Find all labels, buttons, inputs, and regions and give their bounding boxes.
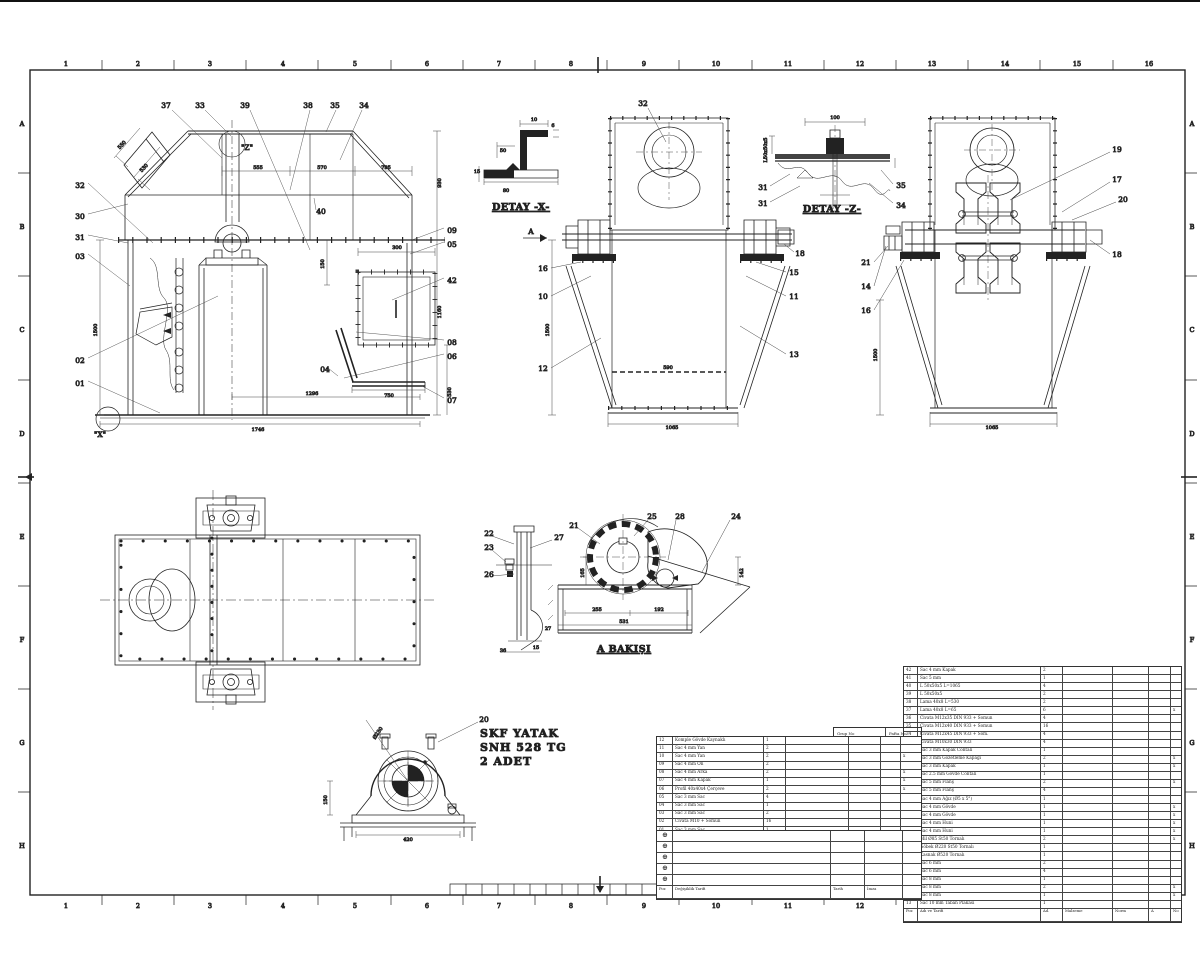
svg-text:B: B	[1190, 223, 1195, 231]
svg-text:13: 13	[928, 60, 936, 68]
table-row: 12Komple Gövde Kaynaklı1	[657, 737, 921, 745]
table-row: 28Sac 5 mm Flanş2 x	[904, 780, 1181, 788]
svg-text:SNH 528 TG: SNH 528 TG	[480, 741, 567, 754]
table-row: 14Sac 8 mm1 x	[904, 893, 1181, 901]
svg-text:4: 4	[281, 60, 285, 68]
pulley-view: 19 17 20 18 21 14 16 1500 1065	[861, 118, 1128, 431]
revision-symbol: ⊕	[657, 853, 673, 864]
svg-text:300: 300	[392, 245, 402, 251]
svg-text:7: 7	[497, 902, 501, 910]
svg-text:DETAY -Z-: DETAY -Z-	[803, 204, 861, 215]
svg-text:8: 8	[569, 902, 573, 910]
table-row: 40L 50x50x5 L=10654	[904, 683, 1181, 691]
svg-text:15: 15	[1073, 60, 1081, 68]
svg-text:B: B	[20, 223, 25, 231]
svg-text:A: A	[19, 120, 25, 128]
svg-text:19: 19	[1112, 145, 1122, 154]
revision-row: ⊕	[657, 864, 921, 875]
svg-text:1065: 1065	[986, 425, 999, 431]
svg-text:31: 31	[75, 233, 85, 242]
svg-text:22: 22	[484, 529, 494, 538]
table-row: 29Sac 2.5 mm Gövde Contalı1	[904, 772, 1181, 780]
svg-text:531: 531	[619, 619, 629, 625]
svg-text:5: 5	[353, 60, 357, 68]
table-row: 41Sac 5 mm1	[904, 675, 1181, 683]
svg-text:530: 530	[139, 163, 150, 174]
svg-text:1: 1	[64, 60, 68, 68]
svg-text:7: 7	[497, 60, 501, 68]
parts-rows: 42Sac 4 mm Kapak2 41Sac 5 mm1 40L 50x50x…	[904, 667, 1181, 909]
svg-text:6: 6	[425, 60, 429, 68]
fold-strip	[450, 884, 658, 895]
svg-text:34: 34	[359, 101, 369, 110]
revision-rows: ⊕ ⊕ ⊕ ⊕ ⊕	[657, 831, 921, 886]
svg-text:F: F	[1190, 636, 1195, 644]
detail-z: 100 L50x50x5 31 31 35 34 DETAY -Z-	[758, 115, 906, 215]
revision-symbol: ⊕	[657, 842, 673, 853]
table-row: 16Sac 8 mm1	[904, 877, 1181, 885]
table-row: 21Mil Ø85 St50 Tornalı2 x	[904, 836, 1181, 844]
svg-text:12: 12	[856, 60, 864, 68]
view-a: 22 23 26 27 21 25 28 24 165 142 255 192 …	[484, 512, 750, 655]
svg-text:13: 13	[789, 350, 799, 359]
svg-text:1296: 1296	[306, 391, 319, 397]
table-row: 30Sac 3 mm Kapak1 x	[904, 764, 1181, 772]
svg-text:Ø230: Ø230	[371, 726, 385, 741]
svg-text:750: 750	[384, 393, 394, 399]
table-row: 15Sac 8 mm2 x	[904, 885, 1181, 893]
revision-row: ⊕	[657, 831, 921, 842]
bearing-detail: 150 420 Ø230 20 SKF YATAK SNH 528 TG 2 A…	[323, 715, 567, 843]
svg-text:2: 2	[136, 60, 140, 68]
svg-text:34: 34	[896, 201, 906, 210]
svg-text:11: 11	[789, 292, 799, 301]
table-row: 38Lama 40x8 L=5302	[904, 699, 1181, 707]
revision-row: ⊕	[657, 842, 921, 853]
svg-text:20: 20	[1118, 195, 1128, 204]
svg-text:570: 570	[317, 165, 327, 171]
svg-text:DETAY -X-: DETAY -X-	[492, 202, 550, 213]
svg-text:1065: 1065	[666, 425, 679, 431]
svg-text:"Z": "Z"	[241, 143, 253, 152]
svg-text:27: 27	[545, 626, 551, 632]
table-row: 11Sac 4 mm Yan2	[657, 745, 921, 753]
svg-text:14: 14	[1001, 60, 1009, 68]
svg-text:31: 31	[758, 199, 768, 208]
svg-text:24: 24	[731, 512, 741, 521]
svg-text:8: 8	[569, 60, 573, 68]
table-row: 34Civata M12x45 DIN 933 + Som.4	[904, 732, 1181, 740]
svg-text:D: D	[19, 430, 24, 438]
svg-text:1746: 1746	[252, 427, 265, 433]
table-row: 06Profil 40x40x4 Çerçeve2 x	[657, 786, 921, 794]
svg-text:03: 03	[75, 252, 85, 261]
table-row: 13Sac 10 mm Taban Plakası1	[904, 901, 1181, 909]
table-row: 10Sac 4 mm Yan2 x	[657, 753, 921, 761]
table-row: 35Civata M12x40 DIN 933 + Somun16	[904, 723, 1181, 731]
detail-x: 10 6 50 15 80 DETAY -X-	[474, 117, 559, 213]
svg-text:37: 37	[161, 101, 171, 110]
svg-text:555: 555	[253, 165, 263, 171]
svg-text:42: 42	[447, 276, 457, 285]
table-row: 26Sac 4 mm Ağız (Ø5 x 5°)1	[904, 796, 1181, 804]
table-row: 22Sac 4 mm Huni1 x	[904, 828, 1181, 836]
svg-text:550: 550	[117, 140, 128, 151]
svg-text:1500: 1500	[93, 324, 99, 337]
table-row: 23Sac 4 mm Huni1 x	[904, 820, 1181, 828]
svg-text:35: 35	[330, 101, 340, 110]
svg-text:150: 150	[320, 259, 326, 269]
svg-text:G: G	[1189, 739, 1194, 747]
table-row: 20Göbek Ø220 St50 Tornalı1	[904, 844, 1181, 852]
revision-row: ⊕	[657, 853, 921, 864]
revision-table: ⊕ ⊕ ⊕ ⊕ ⊕ PozDeğişiklik Tarifi Tarihİmza	[656, 830, 922, 900]
table-row: 18Sac 6 mm2	[904, 861, 1181, 869]
svg-text:11: 11	[784, 60, 792, 68]
svg-text:15: 15	[474, 169, 480, 175]
revision-symbol: ⊕	[657, 831, 673, 842]
table-row: 25Sac 4 mm Gövde1 x	[904, 804, 1181, 812]
svg-text:18: 18	[795, 249, 805, 258]
table-row: 04Sac 3 mm Sac1	[657, 803, 921, 811]
svg-text:04: 04	[320, 365, 330, 374]
svg-text:G: G	[19, 739, 24, 747]
table-row: 07Sac 4 mm Kapak1 x	[657, 778, 921, 786]
svg-text:"X": "X"	[94, 430, 106, 439]
svg-text:14: 14	[861, 282, 871, 291]
svg-text:32: 32	[638, 99, 648, 108]
svg-text:C: C	[1190, 326, 1195, 334]
svg-text:09: 09	[447, 226, 457, 235]
svg-text:16: 16	[538, 264, 548, 273]
svg-text:50: 50	[500, 148, 506, 154]
svg-text:255: 255	[592, 607, 602, 613]
svg-text:31: 31	[758, 183, 768, 192]
table-row: 31Sac 3 mm Gözetleme Kapağı2 x	[904, 756, 1181, 764]
svg-text:16: 16	[1145, 60, 1153, 68]
svg-text:28: 28	[675, 512, 685, 521]
svg-text:4: 4	[281, 902, 285, 910]
drawing-sheet: { "border": { "cols": ["1","2","3","4","…	[0, 0, 1200, 960]
svg-text:27: 27	[554, 533, 564, 542]
svg-text:32: 32	[75, 181, 85, 190]
svg-text:18: 18	[1112, 250, 1122, 259]
svg-text:590: 590	[663, 365, 673, 371]
table-row: 05Sac 3 mm Sac4	[657, 794, 921, 802]
table-row: 08Sac 4 mm Arka2 x	[657, 770, 921, 778]
svg-text:08: 08	[447, 338, 457, 347]
svg-text:C: C	[20, 326, 25, 334]
table-row: 33Civata M10x30 DIN 9334	[904, 740, 1181, 748]
table-row: 19Kasnak Ø520 Tornalı1	[904, 852, 1181, 860]
table-row: 32Sac 3 mm Kapak Contalı1	[904, 748, 1181, 756]
table-row: 24Sac 4 mm Gövde1 x	[904, 812, 1181, 820]
svg-text:1500: 1500	[873, 349, 879, 362]
svg-text:1: 1	[64, 902, 68, 910]
svg-text:530: 530	[447, 387, 453, 397]
svg-text:12: 12	[538, 364, 548, 373]
svg-text:D: D	[1189, 430, 1194, 438]
svg-text:26: 26	[484, 570, 494, 579]
svg-text:5: 5	[353, 902, 357, 910]
svg-text:12: 12	[856, 902, 864, 910]
svg-text:3: 3	[208, 902, 212, 910]
revision-footer: PozDeğişiklik Tarifi Tarihİmza	[657, 886, 921, 899]
revision-row: ⊕	[657, 875, 921, 886]
svg-text:2 ADET: 2 ADET	[480, 755, 532, 768]
revision-symbol: ⊕	[657, 875, 673, 886]
svg-text:A: A	[1189, 120, 1195, 128]
parts-rows-left: 12Komple Gövde Kaynaklı1 11Sac 4 mm Yan2…	[657, 737, 921, 835]
svg-text:33: 33	[195, 101, 205, 110]
svg-text:9: 9	[642, 60, 646, 68]
svg-text:1160: 1160	[437, 306, 443, 319]
svg-text:100: 100	[830, 115, 840, 121]
table-row: 17Sac 6 mm4	[904, 869, 1181, 877]
svg-text:F: F	[20, 636, 25, 644]
plan-view	[100, 490, 435, 710]
svg-text:06: 06	[447, 352, 457, 361]
svg-text:30: 30	[75, 212, 85, 221]
svg-text:930: 930	[437, 178, 443, 188]
svg-text:795: 795	[381, 165, 391, 171]
svg-text:20: 20	[479, 715, 489, 724]
svg-text:38: 38	[303, 101, 313, 110]
svg-text:21: 21	[569, 521, 579, 530]
svg-text:192: 192	[654, 607, 664, 613]
svg-text:A BAKIŞI: A BAKIŞI	[596, 644, 651, 655]
svg-text:23: 23	[484, 543, 494, 552]
table-row: 09Sac 4 mm Ön2	[657, 762, 921, 770]
svg-text:02: 02	[75, 356, 85, 365]
table-row: 02Civata M10 + Somun16	[657, 819, 921, 827]
svg-text:150: 150	[323, 795, 329, 805]
svg-text:36: 36	[500, 648, 506, 654]
svg-text:E: E	[20, 533, 25, 541]
svg-text:16: 16	[861, 306, 871, 315]
svg-text:2: 2	[136, 902, 140, 910]
svg-text:39: 39	[240, 101, 250, 110]
svg-text:01: 01	[75, 379, 85, 388]
svg-text:15: 15	[789, 268, 799, 277]
svg-text:165: 165	[580, 568, 586, 578]
svg-text:6: 6	[425, 902, 429, 910]
svg-text:10: 10	[531, 117, 537, 123]
table-row: 39L 50x50x52	[904, 691, 1181, 699]
svg-text:E: E	[1190, 533, 1195, 541]
svg-text:21: 21	[861, 258, 871, 267]
svg-text:05: 05	[447, 240, 457, 249]
svg-text:17: 17	[1112, 175, 1122, 184]
table-row: 36Civata M12x35 DIN 933 + Somun4	[904, 715, 1181, 723]
table-row: 37Lama 40x8 L=656 x	[904, 707, 1181, 715]
svg-text:10: 10	[538, 292, 548, 301]
table-row: 42Sac 4 mm Kapak2	[904, 667, 1181, 675]
revision-symbol: ⊕	[657, 864, 673, 875]
svg-text:SKF YATAK: SKF YATAK	[480, 727, 559, 740]
svg-text:3: 3	[208, 60, 212, 68]
svg-text:25: 25	[647, 512, 657, 521]
parts-header: PozAdı ve Tarifi Ad.Malzeme NormA No	[904, 909, 1181, 922]
svg-text:40: 40	[316, 207, 326, 216]
svg-text:15: 15	[533, 645, 539, 651]
svg-text:80: 80	[503, 188, 509, 194]
svg-text:H: H	[19, 842, 25, 850]
svg-text:10: 10	[712, 902, 720, 910]
svg-text:6: 6	[551, 123, 554, 129]
svg-text:35: 35	[896, 181, 906, 190]
front-view: 37 33 39 38 35 34 32 30 31 03 02 01 09 0…	[75, 101, 457, 439]
parts-list-right: 42Sac 4 mm Kapak2 41Sac 5 mm1 40L 50x50x…	[903, 666, 1182, 923]
svg-text:H: H	[1189, 842, 1195, 850]
svg-text:11: 11	[784, 902, 792, 910]
svg-text:1500: 1500	[545, 324, 551, 337]
svg-text:L50x50x5: L50x50x5	[763, 138, 769, 163]
table-row: 27Sac 5 mm Flanş4	[904, 788, 1181, 796]
svg-text:10: 10	[712, 60, 720, 68]
svg-text:420: 420	[403, 837, 413, 843]
svg-text:142: 142	[739, 568, 745, 578]
svg-text:A: A	[527, 227, 534, 236]
svg-text:9: 9	[642, 902, 646, 910]
table-row: 03Sac 3 mm Sac2	[657, 811, 921, 819]
